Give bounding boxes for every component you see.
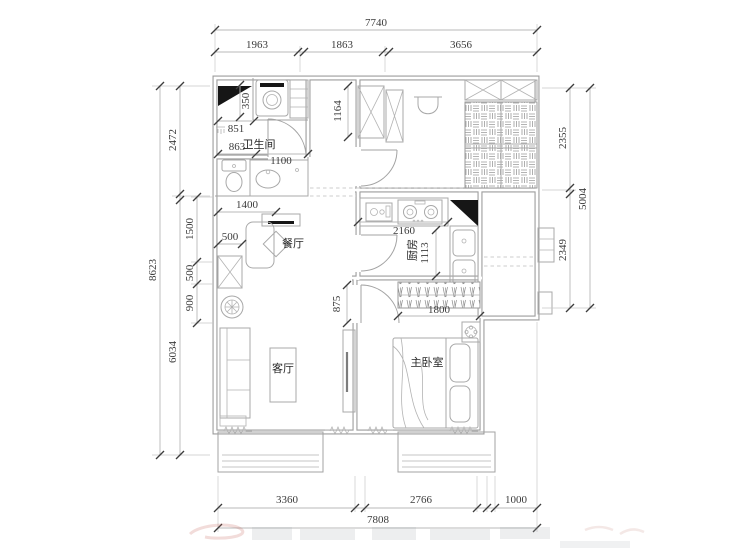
- chair-icon: [414, 97, 442, 114]
- dim-bottom-seg-2: 2766: [410, 494, 433, 506]
- dim-bottom-seg-3: 1000: [505, 494, 528, 506]
- dining-cabinet-icon: [218, 256, 242, 288]
- dim-top-seg-2: 1863: [331, 39, 354, 51]
- toilet-icon: [222, 160, 246, 192]
- small-appliance-icon: [366, 203, 392, 221]
- dim-top-total: 7740: [365, 17, 388, 29]
- dim-closet-1164: 1164: [332, 100, 344, 122]
- dim-bath-851: 851: [228, 123, 245, 135]
- gas-stove-icon: [398, 200, 442, 224]
- tatami-bed-icon: [465, 102, 537, 188]
- living-room: [220, 328, 355, 426]
- dim-left-inner-1: 1500: [184, 218, 196, 241]
- master-bedroom: [361, 282, 480, 428]
- room-label-dining: 餐厅: [282, 236, 304, 250]
- floor-plan-page: 7740 1963 1863 3656 8623 2472 6034 1500 …: [0, 0, 740, 555]
- dim-right-seg-1: 2355: [557, 127, 569, 150]
- second-room: [358, 80, 537, 188]
- dim-left-inner-3: 900: [184, 294, 196, 311]
- ac-platform: [538, 228, 554, 314]
- dim-entry-1400: 1400: [236, 199, 259, 211]
- dim-flue-350: 350: [240, 92, 252, 109]
- kitchen-door-arc: [361, 235, 397, 271]
- kitchen-flue-triangle-icon: [450, 200, 478, 226]
- bathroom: [216, 78, 308, 196]
- dining-area: [218, 214, 300, 318]
- dim-wardrobe-1800: 1800: [428, 304, 451, 316]
- dim-left-inner-2: 500: [184, 264, 196, 281]
- sofa-icon: [220, 328, 250, 426]
- balcony-left: [218, 432, 323, 472]
- dim-bath-door-1100: 1100: [270, 155, 292, 167]
- room-label-kitchen: 厨房: [406, 239, 419, 261]
- dim-top-seg-1: 1963: [246, 39, 269, 51]
- balcony-right: [398, 432, 495, 472]
- dim-bottom-total: 7808: [367, 514, 390, 526]
- plant-icon: [221, 296, 243, 318]
- dim-left-seg-2: 6034: [167, 341, 179, 364]
- washing-machine-icon: [256, 80, 288, 116]
- room-label-bathroom: 卫生间: [243, 137, 276, 151]
- second-room-door-arc: [361, 150, 397, 186]
- wardrobe-icon: [358, 86, 403, 142]
- dim-bottom-seg-1: 3360: [276, 494, 299, 506]
- room-label-living: 客厅: [272, 361, 294, 375]
- dim-right-total: 5004: [577, 188, 589, 211]
- bedroom-door-arc: [361, 285, 399, 323]
- room-label-master-bedroom: 主卧室: [411, 355, 444, 369]
- coffee-table-icon: [270, 348, 296, 402]
- dim-left-seg-1: 2472: [167, 129, 179, 151]
- dim-left-total: 8623: [147, 259, 159, 282]
- dim-right-seg-2: 2349: [557, 239, 569, 262]
- dim-kitchen-1113: 1113: [419, 242, 431, 264]
- dim-bedroom-door-875: 875: [331, 295, 343, 312]
- watermark: [190, 525, 644, 548]
- dim-kitchen-2160: 2160: [393, 225, 416, 237]
- dim-top-seg-3: 3656: [450, 39, 473, 51]
- towel-shelf-icon: [290, 80, 308, 118]
- dim-cabinet-500: 500: [222, 231, 239, 243]
- shoe-cabinet-icon: [262, 214, 300, 226]
- floor-plan-drawing: 7740 1963 1863 3656 8623 2472 6034 1500 …: [0, 0, 740, 555]
- top-closet-icon: [465, 80, 537, 100]
- double-bed-icon: [393, 338, 478, 428]
